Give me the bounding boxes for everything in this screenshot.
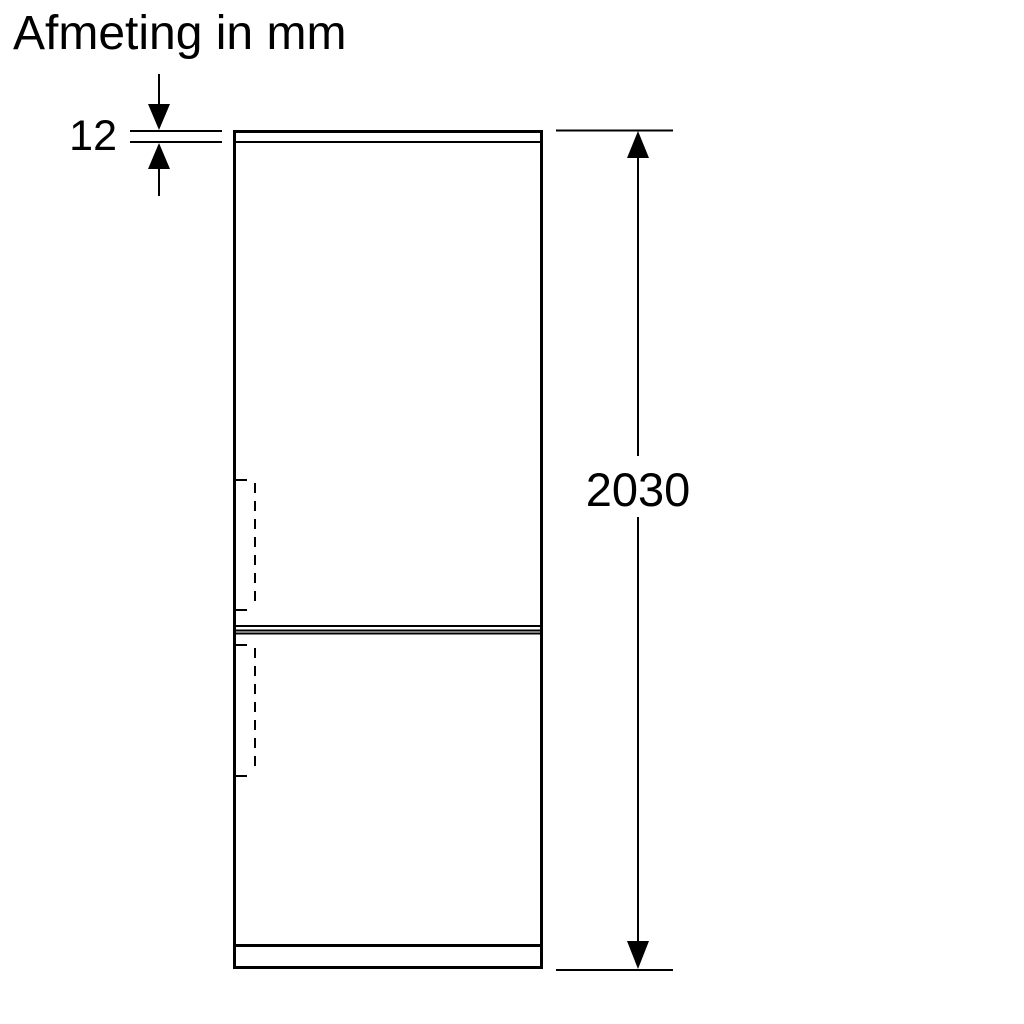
dim12-up-arrow-icon bbox=[148, 143, 170, 169]
fridge-outline-drawing bbox=[0, 0, 1024, 1024]
dim2030-down-arrow-icon bbox=[627, 941, 649, 969]
fridge-outer-outline bbox=[235, 132, 542, 968]
dim12-down-arrow-icon bbox=[148, 104, 170, 130]
dim2030-up-arrow-icon bbox=[627, 131, 649, 158]
dimension-diagram: Afmeting in mm 12 2030 bbox=[0, 0, 1024, 1024]
